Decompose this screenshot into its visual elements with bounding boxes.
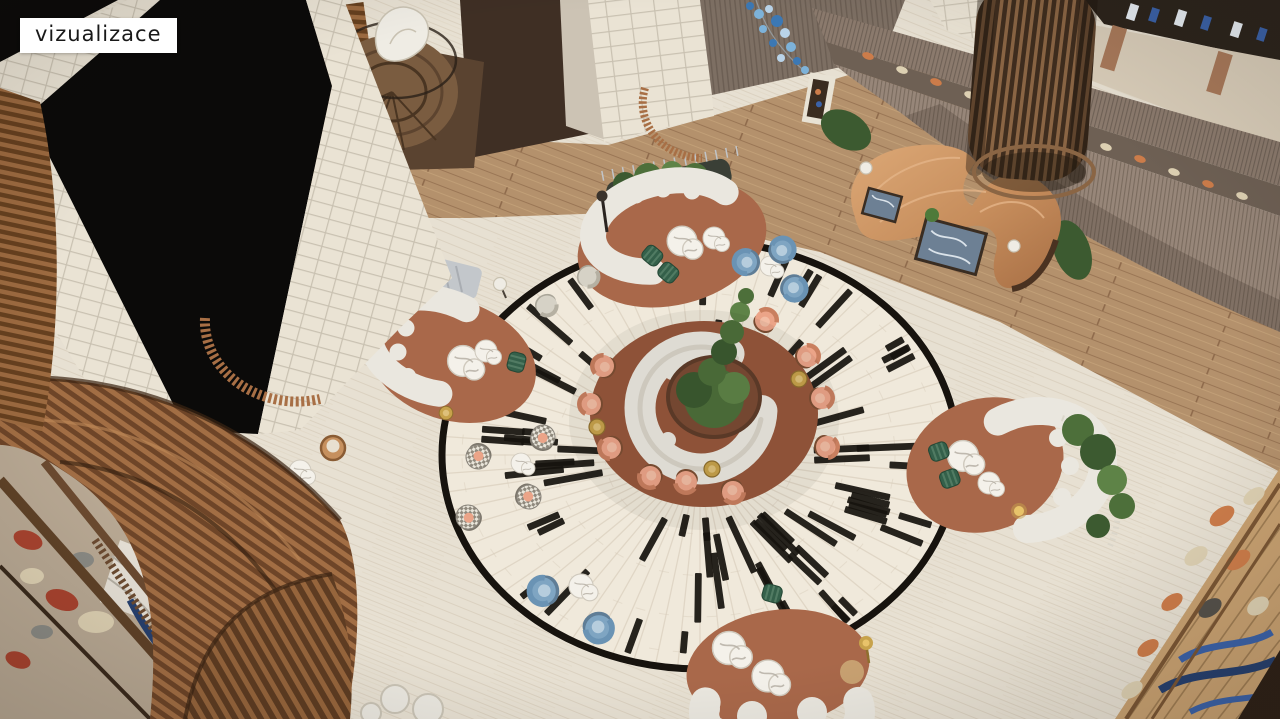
visualization-label-badge: vizualizace (20, 18, 177, 53)
lobby-scene (0, 0, 1280, 719)
visualization-label: vizualizace (35, 22, 162, 46)
lobby-visualization-render: vizualizace (0, 0, 1280, 719)
vignette (0, 0, 1280, 719)
